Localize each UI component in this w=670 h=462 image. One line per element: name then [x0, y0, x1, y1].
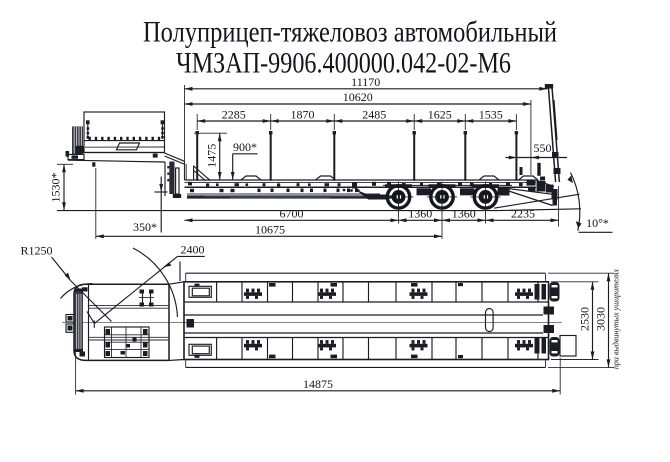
svg-text:6700: 6700 — [280, 206, 304, 220]
svg-text:550: 550 — [534, 141, 552, 155]
svg-text:2400: 2400 — [181, 243, 205, 257]
svg-text:1475: 1475 — [205, 144, 219, 168]
svg-text:1360: 1360 — [408, 206, 432, 220]
svg-text:2530: 2530 — [578, 307, 592, 331]
svg-text:1360: 1360 — [452, 206, 476, 220]
svg-text:1625: 1625 — [428, 107, 452, 121]
svg-text:10620: 10620 — [343, 90, 373, 104]
svg-text:1535: 1535 — [479, 107, 503, 121]
svg-text:11170: 11170 — [351, 75, 380, 89]
svg-text:350*: 350* — [133, 220, 157, 234]
svg-text:2285: 2285 — [222, 107, 246, 121]
svg-text:10675: 10675 — [255, 222, 285, 236]
svg-text:14875: 14875 — [303, 377, 333, 391]
svg-text:1870: 1870 — [291, 107, 315, 121]
svg-text:900*: 900* — [233, 140, 257, 154]
svg-text:ЧМЗАП-9906.400000.042-02-М6: ЧМЗАП-9906.400000.042-02-М6 — [176, 47, 511, 80]
svg-text:3030: 3030 — [594, 307, 608, 331]
svg-text:2485: 2485 — [362, 107, 386, 121]
svg-text:1530*: 1530* — [49, 173, 63, 203]
svg-text:Полуприцеп-тяжеловоз автомобил: Полуприцеп-тяжеловоз автомобильный — [143, 16, 557, 49]
svg-text:при выдвинутых уширителях: при выдвинутых уширителях — [612, 268, 621, 369]
svg-text:10°*: 10°* — [586, 216, 609, 230]
svg-text:2235: 2235 — [511, 206, 535, 220]
svg-text:R1250: R1250 — [20, 244, 52, 258]
